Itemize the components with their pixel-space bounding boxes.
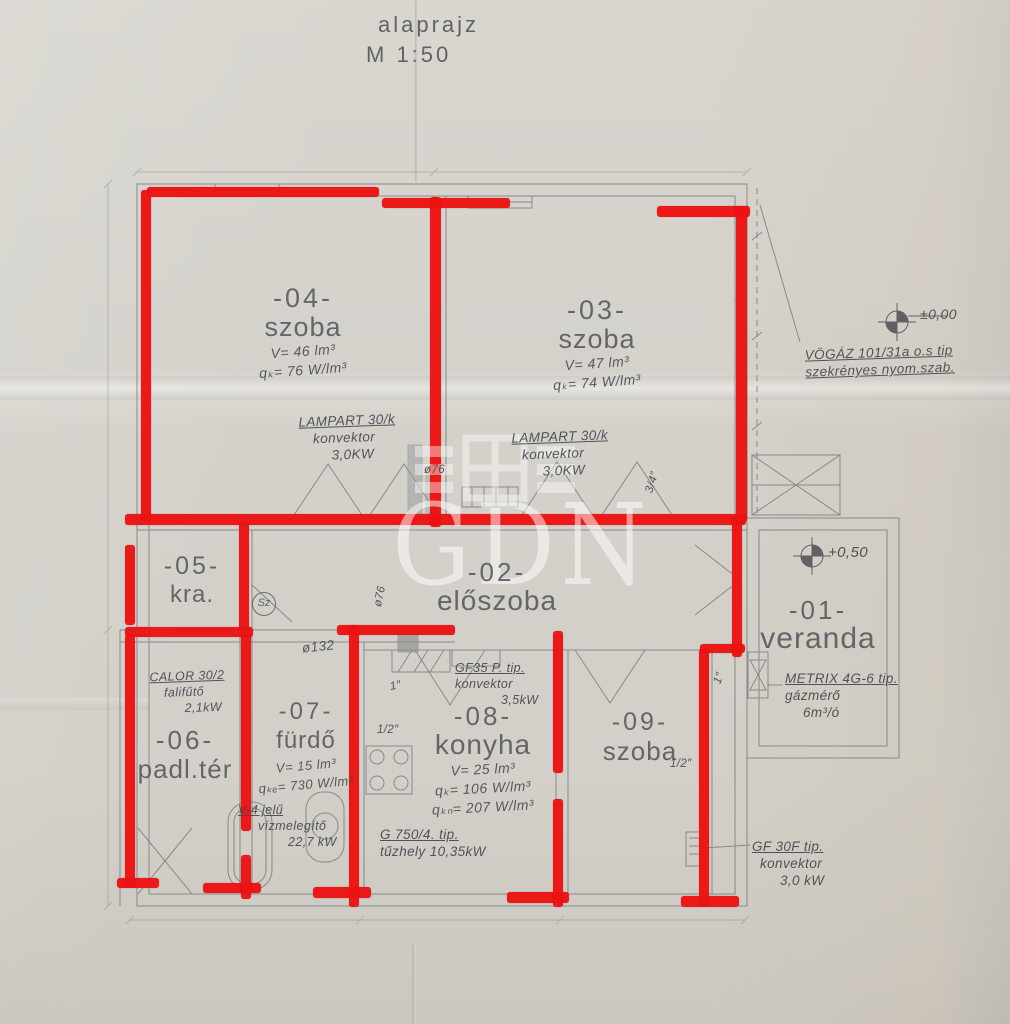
room-label-05: -05- kra. (164, 552, 220, 610)
room-label-08: -08- konyha V= 25 lm³ qₖ= 106 W/lm³ qₖₙ=… (432, 702, 534, 817)
annotation-line: GF 30F tip. (752, 838, 824, 855)
annotation-line: 22,7 kW (238, 834, 337, 850)
room-name: konyha (432, 730, 534, 760)
annotation-line: vízmelegítő (238, 818, 337, 834)
annotation-vogaz: VÖGÁZ 101/31a o.s tip szekrényes nyom.sz… (804, 341, 955, 380)
title-scale: M 1:50 (366, 40, 479, 70)
room-number: -09- (603, 708, 677, 736)
annotation-v4: V-4 jelű vízmelegítő 22,7 kW (238, 802, 337, 850)
room-label-02: -02- előszoba (437, 558, 557, 616)
floorplan-photo: GDN alaprajz M 1:50 -04- szoba V= 46 lm³… (0, 0, 1010, 1024)
room-number: -04- (259, 284, 347, 312)
room-label-07: -07- fürdő V= 15 lm³ qₖₑ= 730 W/lm³ (258, 698, 353, 794)
marked-wall-segment (203, 883, 261, 893)
marked-wall-segment (553, 799, 563, 907)
marked-wall-segment (147, 187, 379, 197)
room-number: -01- (760, 596, 875, 624)
pipe-label-half-b: 1/2″ (670, 756, 692, 773)
title-name: alaprajz (378, 10, 479, 40)
room-number: -06- (138, 726, 233, 754)
marked-wall-segment (125, 627, 253, 637)
annotation-line: CALOR 30/2 (149, 667, 224, 686)
room-number: -07- (258, 698, 353, 726)
annotation-gf35: GF35 P. tip. konvektor 3,5kW (455, 660, 538, 708)
marked-wall-segment (736, 206, 747, 522)
room-name: padl.tér (138, 754, 233, 784)
room-label-09: -09- szoba (603, 708, 677, 766)
marked-wall-segment (141, 190, 151, 520)
annotation-line: V-4 jelű (238, 802, 337, 818)
pipe-label-phi132: ø132 (301, 636, 335, 656)
marked-wall-segment (732, 517, 742, 657)
annotation-line: 2,1kW (150, 699, 225, 718)
marked-wall-segment (125, 545, 135, 625)
room-name: szoba (553, 324, 641, 354)
marked-wall-segment (313, 887, 371, 898)
elevation-veranda: +0,50 (828, 544, 868, 561)
room-name: fürdő (258, 726, 353, 756)
annotation-metrix: METRIX 4G-6 tip. gázmérő 6m³/ó (785, 670, 898, 721)
pipe-label-phi76: ø76 (424, 462, 445, 479)
annotation-line: 3,0KW (512, 460, 609, 480)
annotation-g750: G 750/4. tip. tűzhely 10,35kW (380, 826, 486, 860)
annotation-line: 3,5kW (455, 692, 538, 708)
marked-wall-segment (699, 649, 709, 906)
annotation-line: 6m³/ó (785, 704, 898, 721)
room-name: előszoba (437, 586, 557, 616)
annotation-calor: CALOR 30/2 falifűtő 2,1kW (149, 667, 226, 718)
annotation-lampart-right: LAMPART 30/k konvektor 3,0KW (511, 426, 609, 480)
annotation-line: konvektor (455, 676, 538, 692)
room-label-03: -03- szoba V= 47 lm³ qₖ= 74 W/lm³ (553, 296, 641, 392)
annotation-line: METRIX 4G-6 tip. (785, 670, 898, 687)
annotation-line: G 750/4. tip. (380, 826, 486, 843)
room-number: -02- (437, 558, 557, 586)
annotation-line: gázmérő (785, 687, 898, 704)
annotation-line: tűzhely 10,35kW (380, 843, 486, 860)
annotation-gf30: GF 30F tip. konvektor 3,0 kW (752, 838, 824, 889)
annotation-lampart-left: LAMPART 30/k konvektor 3,0KW (298, 410, 396, 464)
annotation-line: GF35 P. tip. (455, 660, 538, 676)
sz-symbol: Sz (252, 592, 276, 616)
drawing-title: alaprajz M 1:50 (378, 10, 479, 70)
marked-wall-segment (239, 523, 249, 631)
room-label-06: -06- padl.tér (138, 726, 233, 784)
marked-wall-segment (241, 855, 251, 899)
marked-wall-segment (125, 635, 135, 887)
room-name: szoba (603, 736, 677, 766)
annotation-line: LAMPART 30/k (298, 410, 395, 430)
room-name: kra. (164, 580, 220, 610)
room-name: veranda (760, 624, 875, 654)
annotation-line: 3,0 kW (752, 872, 824, 889)
room-name: szoba (259, 312, 347, 342)
room-heat-n: qₖₙ= 207 W/lm³ (431, 795, 534, 819)
room-number: -05- (164, 552, 220, 580)
room-label-04: -04- szoba V= 46 lm³ qₖ= 76 W/lm³ (259, 284, 347, 380)
annotation-line: konvektor (752, 855, 824, 872)
marked-wall-segment (553, 631, 563, 773)
marked-wall-segment (117, 878, 159, 888)
annotation-line: 3,0KW (299, 444, 396, 464)
room-number: -03- (553, 296, 641, 324)
annotation-line: LAMPART 30/k (511, 426, 608, 446)
marked-wall-segment (681, 896, 739, 907)
pipe-label-half-a: 1/2″ (377, 722, 399, 739)
room-label-01: -01- veranda (760, 596, 875, 654)
marked-wall-segment (382, 198, 510, 208)
elevation-main: ±0,00 (920, 306, 957, 323)
